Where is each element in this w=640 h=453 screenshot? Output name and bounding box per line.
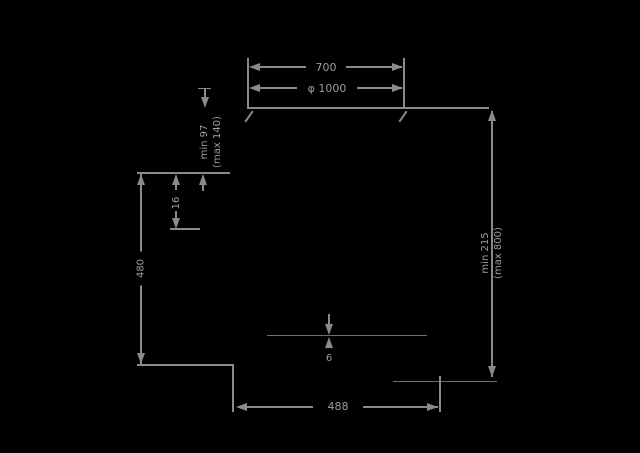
surface-tick-icon — [398, 111, 407, 123]
dim-label-left-gap: min 97 (max 140) — [198, 107, 224, 177]
arrowhead-down-icon — [172, 218, 180, 229]
dim-label-top-width: 700 — [306, 61, 346, 74]
arrowhead-left-icon — [236, 403, 247, 411]
arrowhead-down-icon — [325, 324, 333, 335]
dim-label-step-text: 16 — [170, 197, 183, 210]
dim-label-left-height: 480 — [135, 252, 148, 286]
extension-line-right — [403, 58, 405, 108]
arrowhead-right-icon — [427, 403, 438, 411]
dim-label-diameter: φ 1000 — [297, 82, 357, 95]
dim-label-thickness: 6 — [320, 352, 338, 365]
dimension-drawing: 700 φ 1000 min 97 (max 140) 16 480 min 2… — [0, 0, 640, 453]
dim-label-bottom-width: 488 — [313, 400, 363, 413]
center-reference-line — [267, 335, 427, 336]
dim-label-left-gap-max: (max 140) — [211, 116, 224, 168]
arrowhead-up-icon — [488, 110, 496, 121]
bottom-extension-right — [439, 376, 441, 412]
step-dim-stem-top — [175, 184, 177, 190]
dim-label-left-height-text: 480 — [135, 259, 148, 278]
dim-label-left-gap-min: min 97 — [198, 125, 211, 160]
arrowhead-down-icon — [488, 366, 496, 377]
arrowhead-down-icon — [137, 353, 145, 364]
dim-label-right-gap-min: min 215 — [479, 232, 492, 273]
thickness-stem — [328, 314, 330, 324]
arrowhead-up-icon — [137, 174, 145, 185]
arrowhead-right-icon — [392, 84, 403, 92]
arrowhead-right-icon — [392, 63, 403, 71]
arrowhead-left-icon — [249, 63, 260, 71]
dim-label-step: 16 — [170, 193, 182, 213]
gap-dim-stem-bottom — [202, 184, 204, 191]
surface-tick-icon — [244, 111, 253, 123]
bottom-extension-left — [232, 366, 234, 412]
arrowhead-up-icon — [325, 337, 333, 348]
bottom-left-line — [137, 364, 234, 366]
dim-label-right-gap-max: (max 800) — [492, 227, 505, 279]
dim-label-right-gap: min 215 (max 800) — [479, 218, 505, 288]
top-surface-line — [247, 107, 489, 109]
arrowhead-left-icon — [249, 84, 260, 92]
right-extension-line — [393, 381, 497, 382]
